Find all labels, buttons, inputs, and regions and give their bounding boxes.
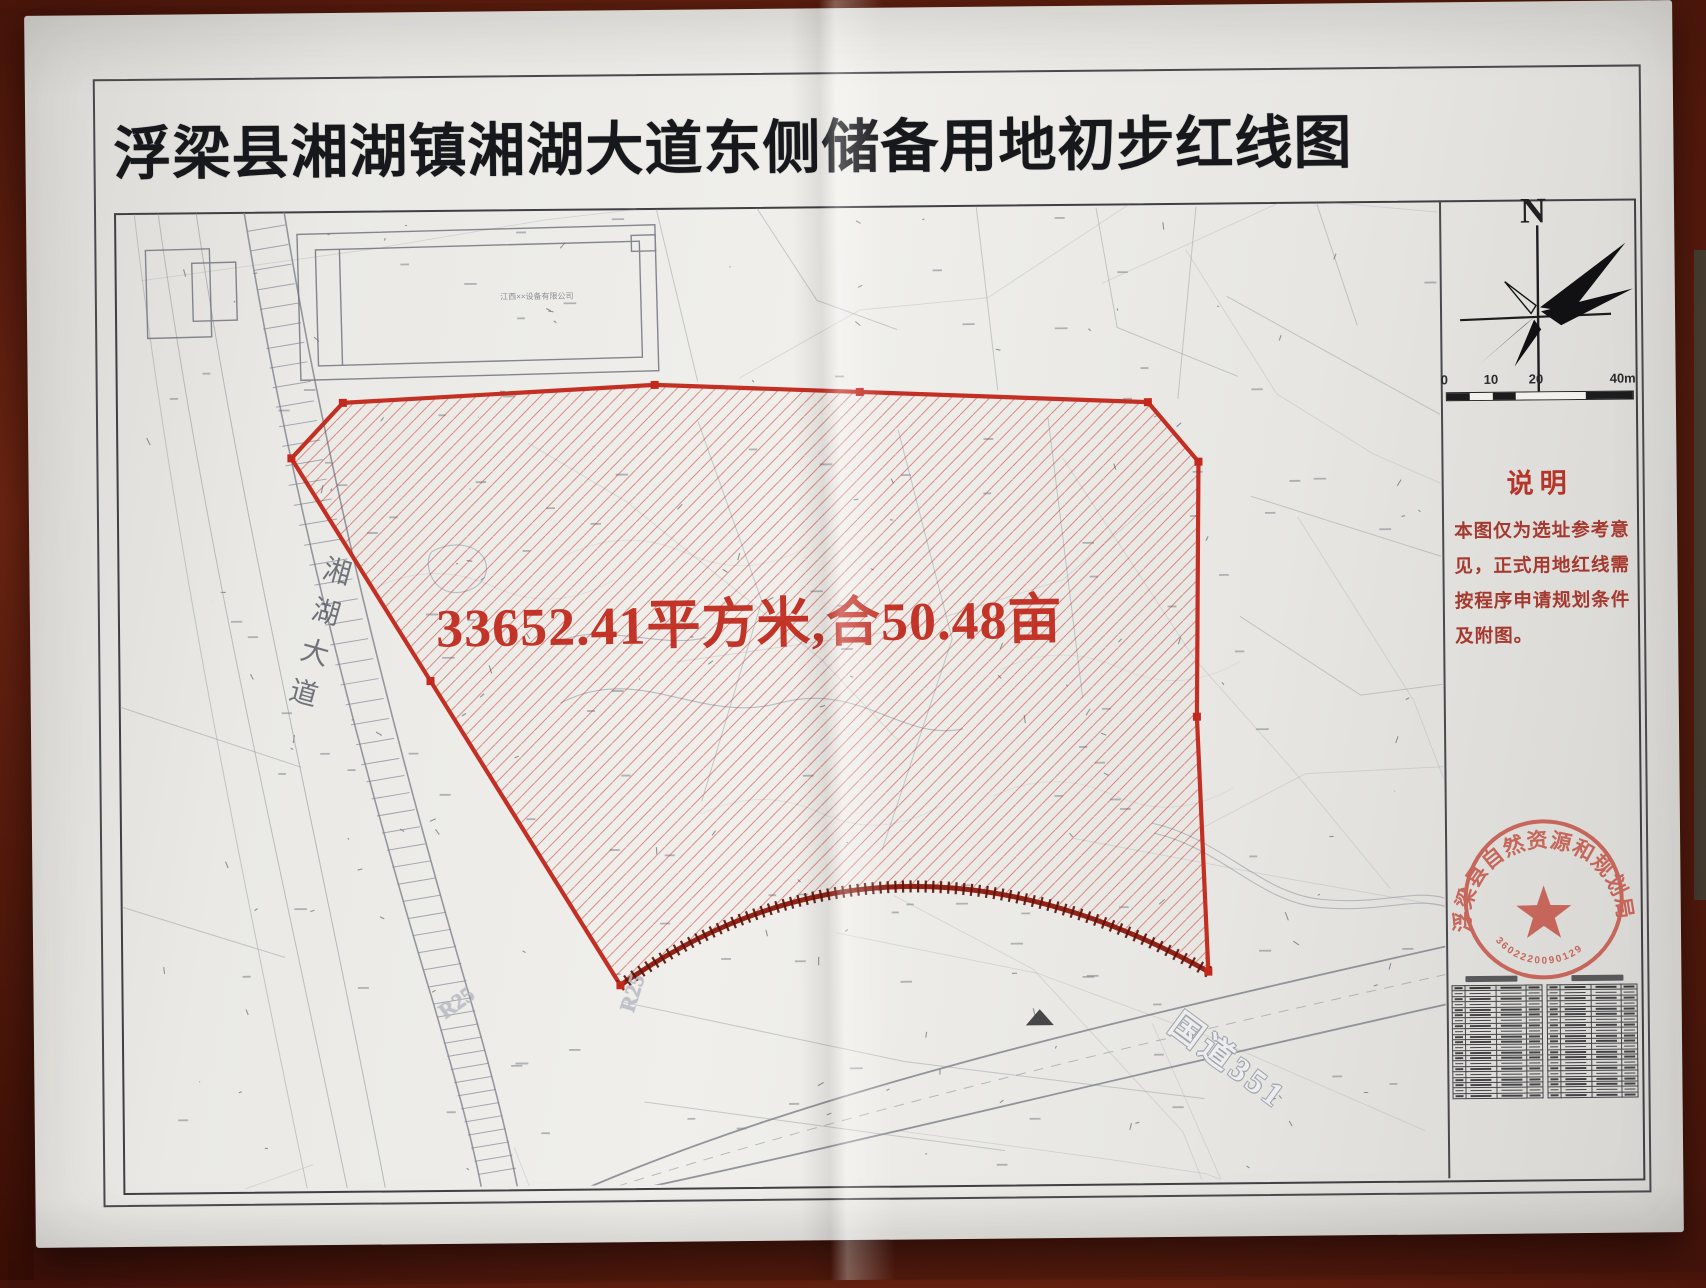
photo-stage: 浮梁县湘湖镇湘湖大道东侧储备用地初步红线图 [0,0,1706,1280]
north-letter: N [1520,189,1546,231]
scale-tick-label: 40m [1610,370,1636,385]
coordinate-table-title-left [1465,976,1517,982]
notes-body: 本图仅为选址参考意见，正式用地红线需按程序申请规划条件及附图。 [1454,514,1627,656]
coordinate-subtable [1451,984,1543,1099]
scale-segment [1447,393,1470,400]
scale-segment [1539,392,1586,399]
factory-compound [145,225,659,385]
notes-line: 及附图。 [1455,619,1627,656]
official-seal: 浮梁县自然资源和规划局 3602220090129 [1450,821,1637,979]
scale-tick-label: 20 [1529,371,1544,386]
scale-tick-label: 10 [1484,372,1499,387]
coordinate-subtable [1546,983,1638,1098]
factory-label: 江西××设备有限公司 [489,291,585,303]
notes-block: 说明 本图仅为选址参考意见，正式用地红线需按程序申请规划条件及附图。 [1453,461,1627,656]
scale-tick-label: 0 [1441,372,1448,387]
notes-line: 按程序申请规划条件 [1455,584,1627,621]
coordinate-table-titles [1451,974,1637,982]
scale-segment [1586,392,1633,399]
scale-segment [1470,393,1493,400]
scale-bar [1446,391,1634,402]
coordinate-table-grids [1451,983,1638,1099]
notes-title: 说明 [1453,461,1625,502]
g351-road [588,946,1448,1186]
seal-number: 3602220090129 [1493,934,1586,967]
coordinate-table-title-right [1571,975,1623,981]
scale-segment [1516,392,1539,399]
notes-line: 本图仅为选址参考意 [1454,514,1626,551]
north-arrow-icon [1459,225,1634,393]
seal-star-icon [1516,885,1572,938]
paper-sheet: 浮梁县湘湖镇湘湖大道东侧储备用地初步红线图 [24,0,1684,1248]
notes-line: 见，正式用地红线需 [1454,549,1626,586]
page-space: 浮梁县湘湖镇湘湖大道东侧储备用地初步红线图 [0,0,1706,1288]
benchmark-triangle [1026,1009,1054,1025]
area-label: 33652.41平方米,合50.48亩 [435,574,1063,662]
redline-polygon [287,376,1213,994]
scale-labels: 0102040m [1438,370,1638,386]
coordinate-table [1451,974,1638,1099]
svg-text:3602220090129: 3602220090129 [1493,934,1586,967]
scale-segment [1493,393,1516,400]
